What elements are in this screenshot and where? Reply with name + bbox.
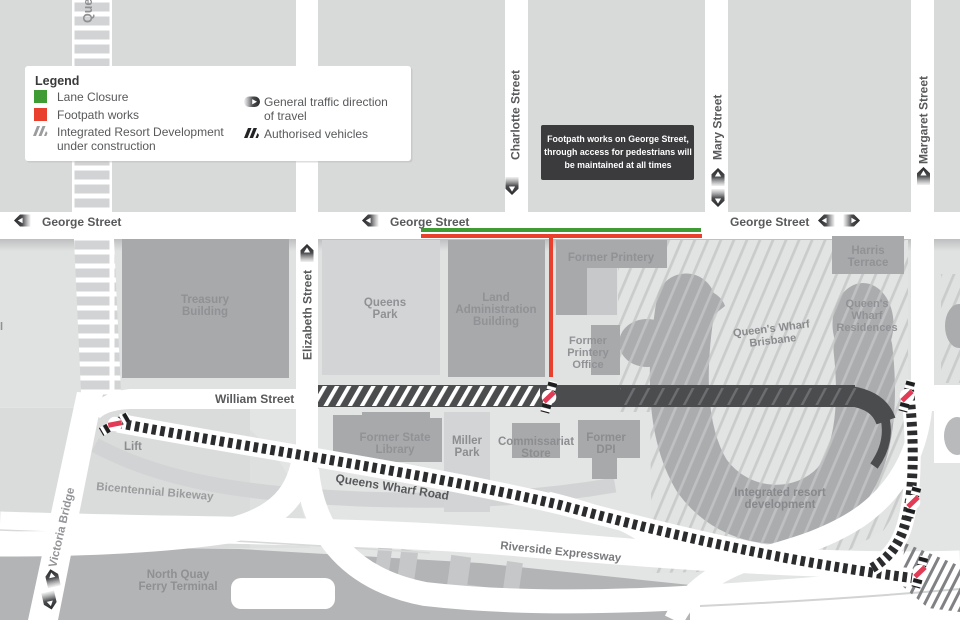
svg-text:Building: Building [473,316,519,328]
svg-text:Footpath works on George Stree: Footpath works on George Street, [547,134,689,144]
svg-text:Wharf: Wharf [851,310,883,322]
svg-text:Land: Land [482,292,509,304]
svg-text:Park: Park [373,309,399,321]
svg-text:George Street: George Street [42,215,121,229]
svg-text:Park: Park [455,447,481,459]
svg-text:Authorised vehicles: Authorised vehicles [264,127,368,141]
svg-text:Mary Street: Mary Street [711,95,725,160]
svg-text:be maintained at all times: be maintained at all times [564,160,671,170]
svg-text:Administration: Administration [455,304,536,316]
svg-text:Queen's: Queen's [846,298,889,310]
svg-text:Former: Former [586,432,626,444]
svg-text:Miller: Miller [452,435,483,447]
svg-text:l: l [0,321,3,333]
svg-text:Residences: Residences [836,322,897,334]
svg-text:Margaret Street: Margaret Street [917,76,931,164]
svg-text:Footpath works: Footpath works [57,108,139,122]
svg-text:Office: Office [572,359,603,371]
svg-text:Former State: Former State [360,432,431,444]
svg-text:North Quay: North Quay [147,569,210,581]
svg-text:Charlotte Street: Charlotte Street [509,70,523,160]
svg-text:Store: Store [521,448,550,460]
svg-text:through access for pedestrians: through access for pedestrians will [544,147,692,157]
svg-text:Ferry Terminal: Ferry Terminal [138,581,217,593]
svg-text:Commissariat: Commissariat [498,436,574,448]
svg-text:Lane Closure: Lane Closure [57,90,129,104]
svg-text:of travel: of travel [264,109,307,123]
svg-text:Lift: Lift [124,441,142,453]
svg-text:George Street: George Street [730,215,809,229]
svg-text:Library: Library [376,444,416,456]
svg-text:Treasury: Treasury [181,294,230,306]
svg-text:DPI: DPI [596,444,615,456]
svg-text:development: development [745,499,816,511]
svg-text:under construction: under construction [57,139,156,153]
svg-text:Building: Building [182,306,228,318]
svg-text:Integrated resort: Integrated resort [734,487,826,499]
svg-text:Former Printery: Former Printery [568,252,655,264]
svg-text:Former: Former [569,335,608,347]
svg-text:Terrace: Terrace [848,257,889,269]
svg-text:Printery: Printery [567,347,609,359]
svg-text:Harris: Harris [851,245,884,257]
svg-text:Queens: Queens [364,297,406,309]
svg-text:Elizabeth Street: Elizabeth Street [301,270,315,360]
svg-text:Queen Street: Queen Street [81,0,95,23]
svg-text:William Street: William Street [215,392,294,406]
svg-text:General traffic direction: General traffic direction [264,95,388,109]
svg-text:Integrated Resort Development: Integrated Resort Development [57,125,224,139]
svg-text:Legend: Legend [35,74,79,88]
svg-text:George Street: George Street [390,215,469,229]
